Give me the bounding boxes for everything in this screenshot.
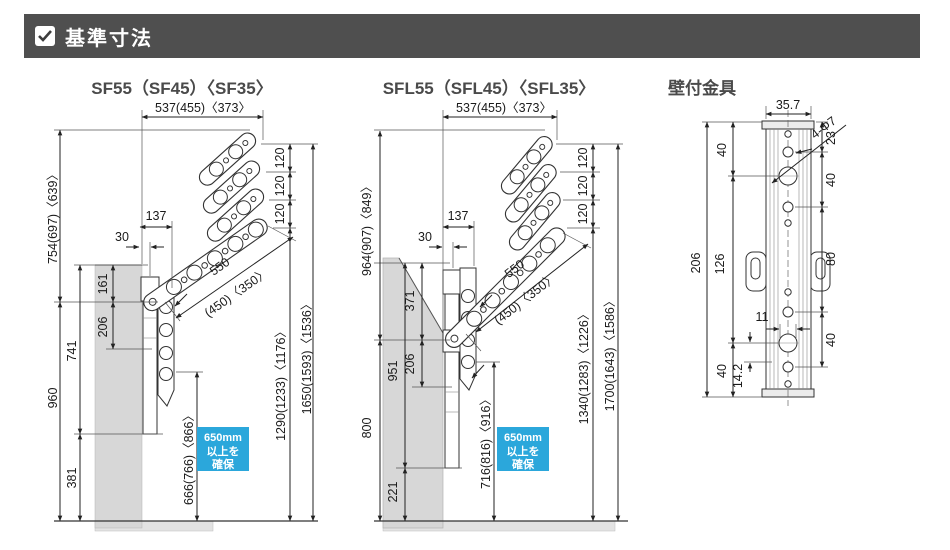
bracket-dim-pitch-bottom: 40 [824, 333, 838, 347]
sf-dim-mount-upper: 161 [96, 274, 110, 295]
sf-dim-pole-clear: 666(766)〈866〉 [182, 409, 196, 505]
sf-dim-wall-height: 960 [46, 388, 60, 409]
sfl-dim-pitch-3: 120 [576, 204, 590, 225]
sf-dim-wall-clear: 30 [115, 230, 129, 244]
sfl-dim-wall-clear: 30 [418, 230, 432, 244]
sf-clearance-note: 650mm 以上を 確保 [197, 427, 249, 471]
sfl-dim-bracket-top: 951 [386, 361, 400, 382]
sfl-dim-tip-height: 1340(1283)〈1226〉 [577, 308, 591, 425]
bracket-labels: 35.7 206 40 126 40 23 40 80 40 11 14.2 4… [689, 98, 839, 388]
sfl-dim-mount-lower: 206 [403, 354, 417, 375]
bracket-dim-hole-to-bottom: 40 [715, 364, 729, 378]
bracket-body [746, 110, 830, 406]
sfl-dim-wall-height: 800 [360, 418, 374, 439]
sfl-clearance-note: 650mm 以上を 確保 [497, 427, 549, 471]
sf-note-line1: 650mm [204, 432, 242, 444]
sfl-mount-plate [445, 270, 459, 468]
sf-dim-tip-height: 1290(1233)〈1176〉 [274, 325, 288, 441]
sf-dim-max-height: 1650(1593)〈1536〉 [300, 298, 314, 415]
sfl-dim-reach: 537(455)〈373〉 [456, 101, 552, 115]
sfl-title: SFL55（SFL45）〈SFL35〉 [383, 78, 596, 98]
sfl-dim-arm-inset: 137 [448, 209, 469, 223]
sfl-dim-pole-clear: 716(816)〈916〉 [479, 393, 493, 489]
bracket-dim-total-height: 206 [689, 253, 703, 274]
sf-dim-pitch-3: 120 [273, 204, 287, 225]
sf-arm-deployed [140, 216, 270, 314]
bracket-diagram: 壁付金具 [668, 78, 846, 406]
bracket-dim-pitch-top: 40 [824, 173, 838, 187]
bracket-screw-hole [785, 381, 791, 387]
bracket-screw-hole [785, 289, 791, 295]
sf-dim-mount-lower: 206 [96, 317, 110, 338]
sfl-arm-assembly [442, 133, 569, 390]
sfl-note-line1: 650mm [504, 432, 542, 444]
bracket-title: 壁付金具 [668, 78, 736, 98]
sfl-dim-max-height: 1700(1643)〈1586〉 [603, 295, 617, 412]
sfl-note-line2: 以上を [507, 444, 540, 458]
bracket-phi7-hole [783, 307, 793, 317]
bracket-dim-top-to-hole: 40 [715, 143, 729, 157]
sf-wall [95, 265, 142, 528]
sf-labels: 537(455)〈373〉 754(697)〈639〉 960 741 381 … [46, 101, 314, 505]
sfl-diagram: SFL55（SFL45）〈SFL35〉 [360, 78, 628, 531]
bracket-phi7-hole [783, 147, 793, 157]
sf-title: SF55（SF45）〈SF35〉 [91, 78, 272, 98]
sf-diagram: SF55（SF45）〈SF35〉 [46, 78, 318, 531]
bracket-dim-pitch-mid: 80 [824, 252, 838, 266]
bracket-screw-hole [785, 131, 791, 137]
sf-dim-bracket-top: 741 [65, 341, 79, 362]
dimension-drawing: SF55（SF45）〈SF35〉 [0, 0, 950, 550]
sfl-dim-pitch-1: 120 [576, 148, 590, 169]
sf-dim-arm-top: 754(697)〈639〉 [46, 168, 60, 264]
sfl-dim-arm-top: 964(907)〈849〉 [360, 180, 374, 276]
sf-note-line3: 確保 [212, 457, 235, 471]
bracket-phi7-hole [783, 202, 793, 212]
spec-sheet: 基準寸法 SF55（SF45）〈SF35〉 [0, 0, 950, 550]
sf-note-line2: 以上を [207, 444, 240, 458]
sf-dim-pitch-2: 120 [273, 176, 287, 197]
sf-dim-pitch-1: 120 [273, 148, 287, 169]
sfl-dim-mount-upper: 371 [403, 291, 417, 312]
bracket-phi7-hole [783, 362, 793, 372]
bracket-dim-hole-span: 126 [713, 254, 727, 275]
bracket-screw-hole [785, 220, 791, 226]
bracket-dim-foot: 14.2 [731, 364, 745, 388]
sfl-dim-bracket-bottom: 221 [386, 482, 400, 503]
sf-arm-assembly [140, 130, 270, 406]
sf-dim-bracket-bottom: 381 [65, 468, 79, 489]
sf-dim-reach: 537(455)〈373〉 [155, 101, 251, 115]
sfl-note-line3: 確保 [512, 457, 535, 471]
sfl-dim-pitch-2: 120 [576, 176, 590, 197]
sf-dim-arm-inset: 137 [146, 209, 167, 223]
bracket-dim-slot-width: 11 [756, 310, 769, 324]
bracket-dim-width: 35.7 [776, 98, 800, 112]
